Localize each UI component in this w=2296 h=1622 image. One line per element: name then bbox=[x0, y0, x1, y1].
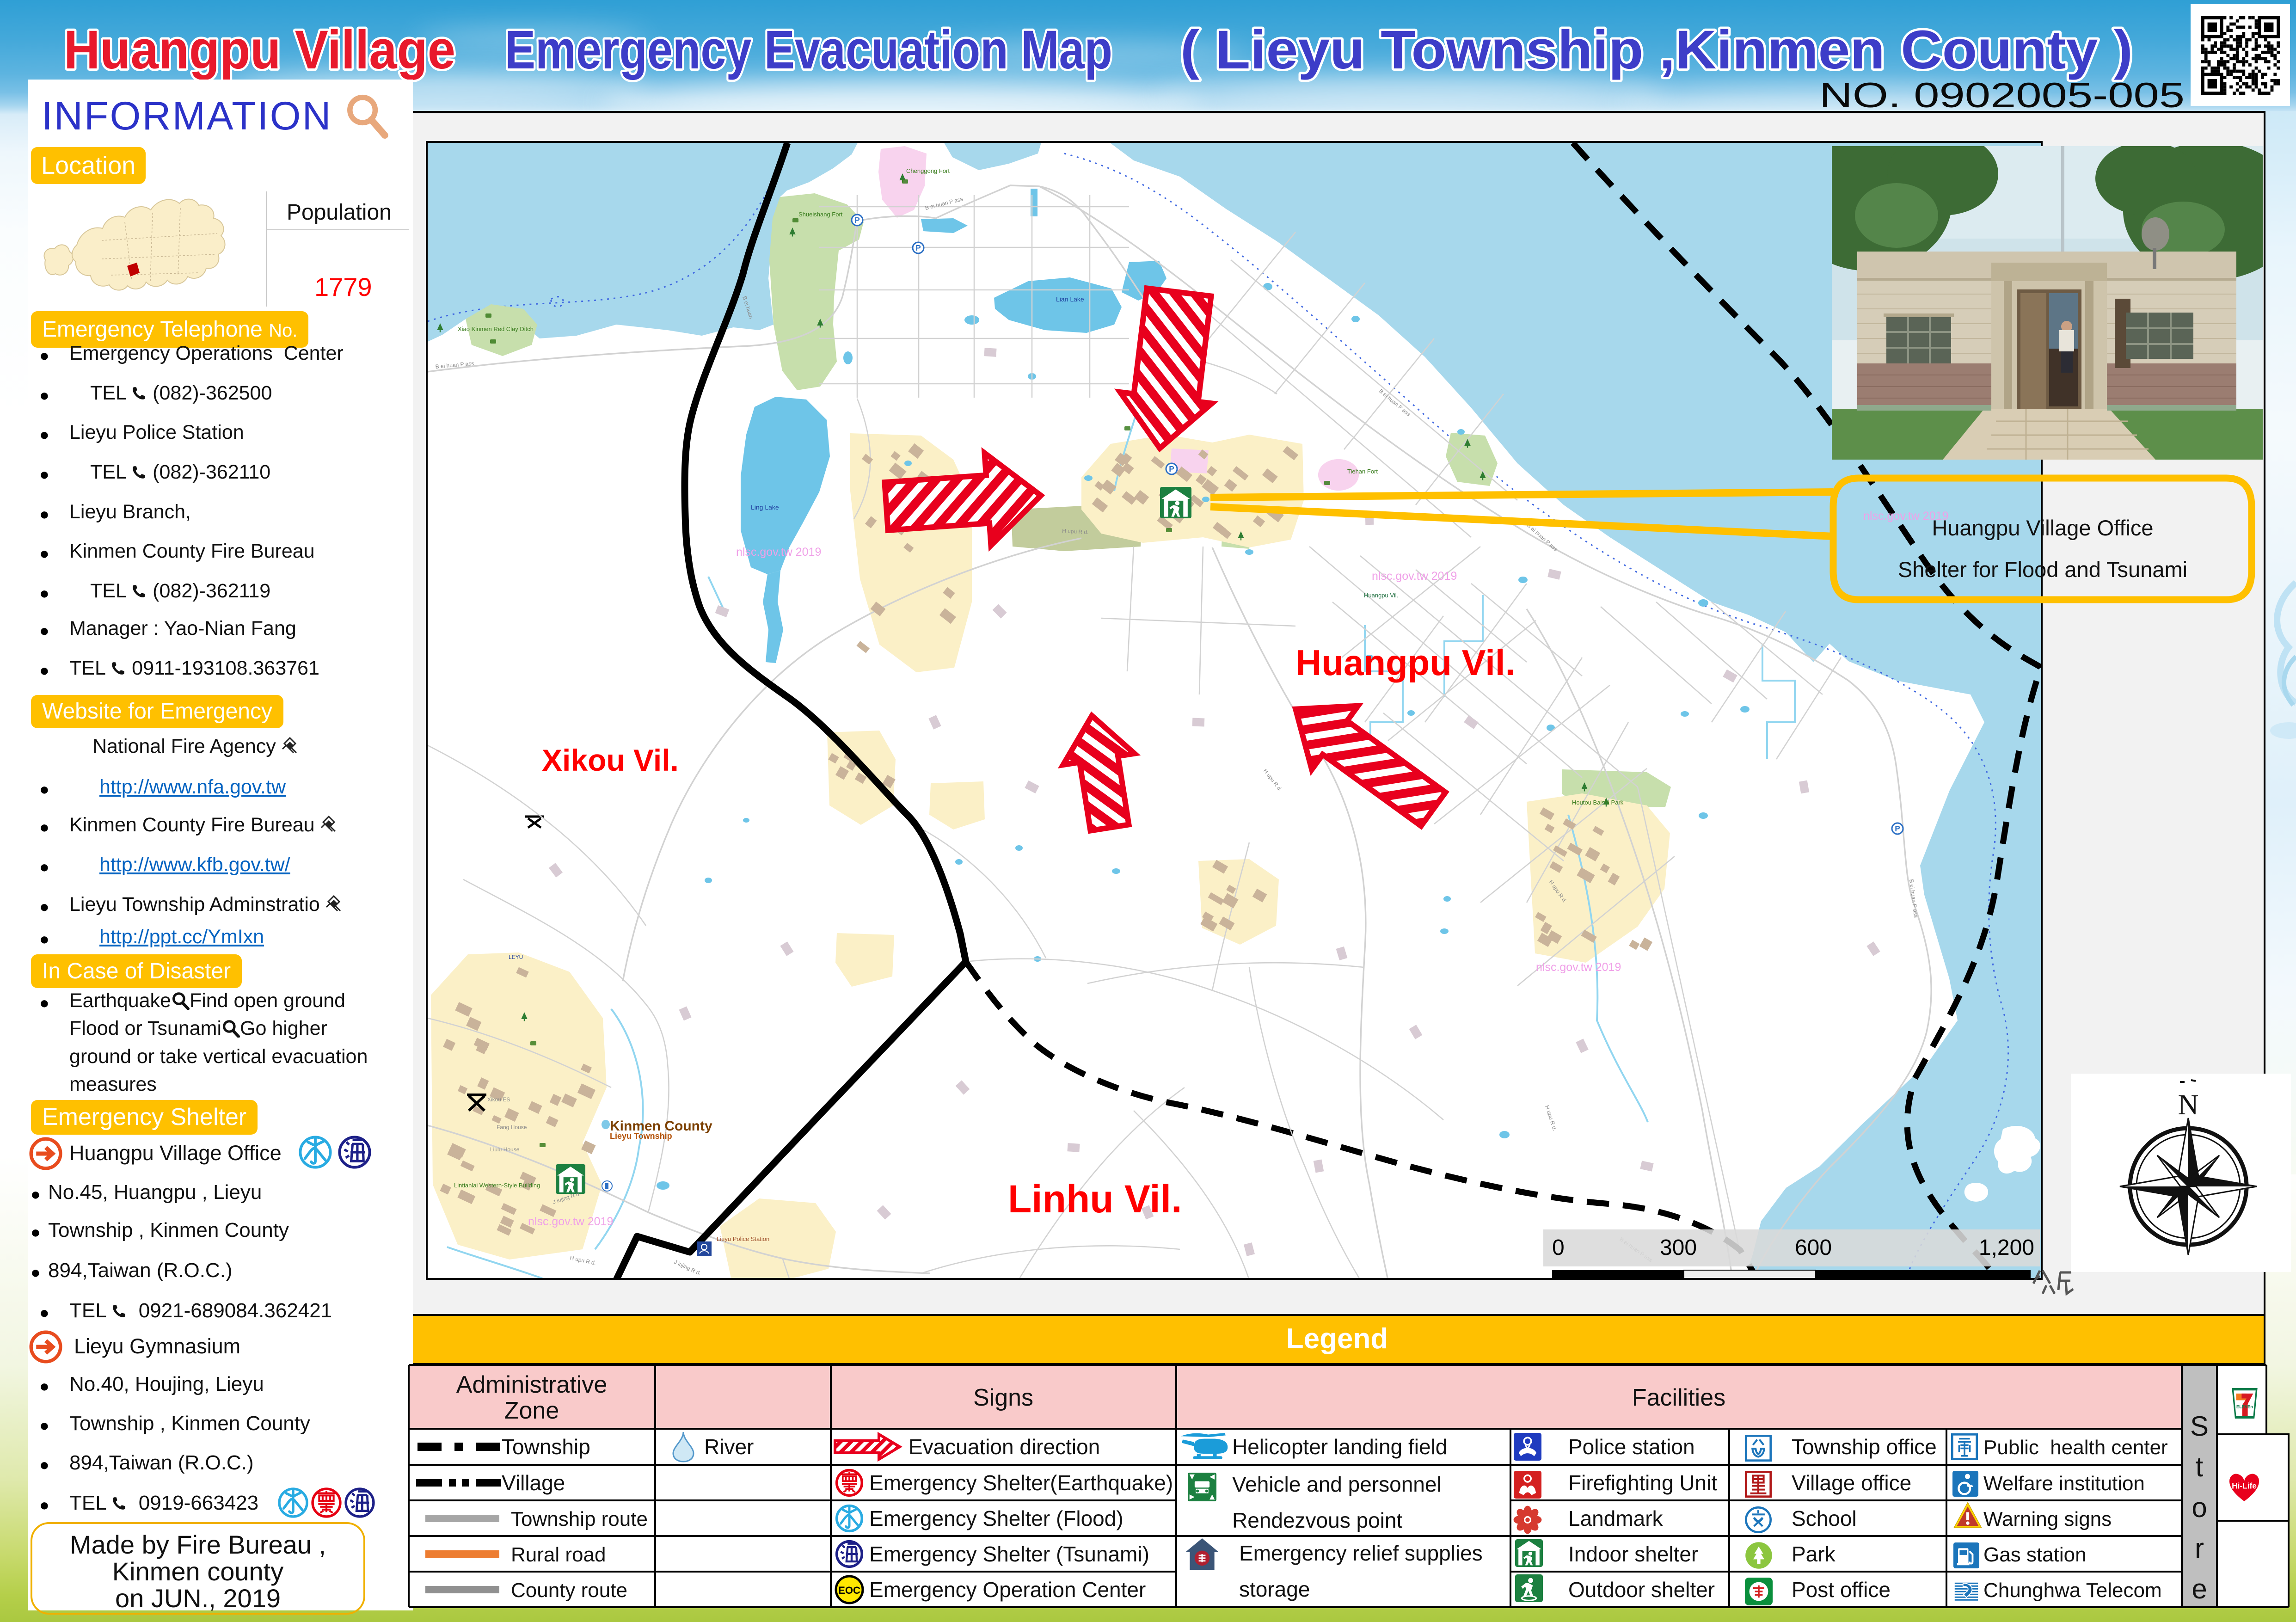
svg-text:Public health center: Public health center bbox=[1983, 1436, 2168, 1459]
svg-text:School: School bbox=[1792, 1506, 1857, 1530]
svg-text:Village: Village bbox=[502, 1471, 565, 1495]
svg-text:Village office: Village office bbox=[1792, 1471, 1911, 1495]
svg-text:County route: County route bbox=[511, 1579, 627, 1602]
svg-text:Gas station: Gas station bbox=[1983, 1543, 2087, 1566]
svg-text:e: e bbox=[2192, 1573, 2207, 1604]
svg-text:Emergency Shelter(Earthquake): Emergency Shelter(Earthquake) bbox=[869, 1471, 1173, 1495]
svg-text:EOC: EOC bbox=[838, 1585, 860, 1596]
svg-text:Emergency Shelter (Tsunami): Emergency Shelter (Tsunami) bbox=[869, 1542, 1149, 1566]
svg-text:Outdoor shelter: Outdoor shelter bbox=[1568, 1578, 1715, 1602]
svg-text:Hi-Life: Hi-Life bbox=[2232, 1481, 2257, 1490]
svg-text:Welfare institution: Welfare institution bbox=[1983, 1472, 2145, 1495]
svg-text:r: r bbox=[2195, 1533, 2204, 1564]
svg-text:Post office: Post office bbox=[1792, 1578, 1891, 1602]
svg-text:Rural road: Rural road bbox=[511, 1543, 606, 1566]
svg-text:Administrative: Administrative bbox=[456, 1371, 608, 1398]
svg-text:Rendezvous point: Rendezvous point bbox=[1232, 1508, 1402, 1532]
svg-text:Township route: Township route bbox=[511, 1508, 648, 1530]
svg-text:Firefighting Unit: Firefighting Unit bbox=[1568, 1471, 1717, 1495]
svg-text:Township office: Township office bbox=[1792, 1435, 1937, 1459]
svg-text:Facilities: Facilities bbox=[1632, 1384, 1725, 1411]
svg-text:S: S bbox=[2190, 1411, 2209, 1442]
svg-text:River: River bbox=[704, 1435, 754, 1459]
svg-text:ELEVEn: ELEVEn bbox=[2236, 1405, 2253, 1409]
svg-text:t: t bbox=[2196, 1451, 2204, 1482]
svg-text:Vehicle and personnel: Vehicle and personnel bbox=[1232, 1472, 1442, 1496]
svg-text:Township: Township bbox=[502, 1435, 590, 1459]
svg-text:Police station: Police station bbox=[1568, 1435, 1695, 1459]
svg-text:Park: Park bbox=[1792, 1542, 1836, 1566]
svg-text:Chunghwa Telecom: Chunghwa Telecom bbox=[1983, 1579, 2162, 1602]
svg-text:storage: storage bbox=[1239, 1577, 1310, 1601]
svg-text:Zone: Zone bbox=[504, 1397, 559, 1424]
svg-text:Warning signs: Warning signs bbox=[1983, 1508, 2112, 1530]
svg-text:o: o bbox=[2192, 1492, 2207, 1523]
svg-text:Emergency Operation Center: Emergency Operation Center bbox=[869, 1578, 1146, 1602]
svg-text:Emergency Shelter (Flood): Emergency Shelter (Flood) bbox=[869, 1506, 1123, 1530]
svg-text:Evacuation direction: Evacuation direction bbox=[909, 1435, 1100, 1459]
svg-text:Indoor shelter: Indoor shelter bbox=[1568, 1542, 1698, 1566]
svg-text:Helicopter landing field: Helicopter landing field bbox=[1232, 1435, 1447, 1459]
svg-text:Emergency relief supplies: Emergency relief supplies bbox=[1239, 1541, 1483, 1565]
svg-text:Landmark: Landmark bbox=[1568, 1506, 1664, 1530]
svg-text:Signs: Signs bbox=[973, 1384, 1033, 1411]
